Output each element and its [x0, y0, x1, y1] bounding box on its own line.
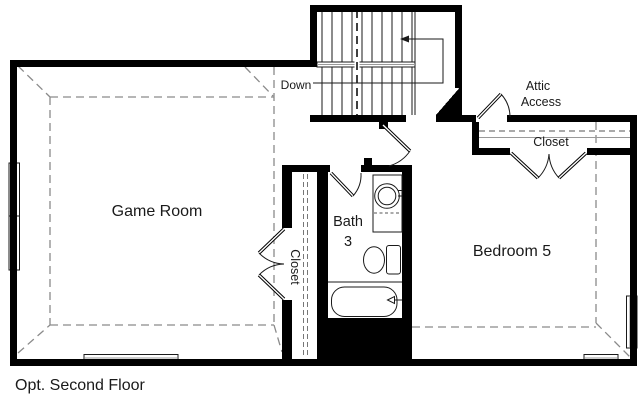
- bedroom-closet-bottom-wall-right: [587, 148, 637, 155]
- bedroom-top-wall-right: [507, 115, 637, 122]
- bedroom-closet-bottom-wall-left: [472, 148, 510, 155]
- closet-left-wall-upper: [282, 172, 292, 228]
- bedroom-label: Bedroom 5: [473, 243, 551, 260]
- bath-plumbing-wall-mass: [317, 318, 412, 366]
- stair-top-wall: [310, 5, 462, 12]
- bath-right-wall: [402, 172, 412, 318]
- down-label: Down: [281, 78, 312, 92]
- attic-access-label-line2: Access: [521, 95, 561, 109]
- stair-right-wall: [455, 12, 462, 88]
- plan-caption: Opt. Second Floor: [15, 377, 146, 394]
- floor-plan: Game Room Bath 3 Bedroom 5 Closet Closet…: [0, 0, 640, 407]
- closet-label-game-room: Closet: [288, 249, 302, 285]
- game-room-top-wall: [13, 60, 317, 67]
- bath-top-wall-left: [282, 165, 330, 172]
- floor-plan-drawing: Game Room Bath 3 Bedroom 5 Closet Closet…: [0, 0, 640, 407]
- bath-left-wall: [317, 172, 328, 318]
- bath-top-wall-right: [361, 165, 412, 172]
- bath-label-line2: 3: [344, 234, 352, 250]
- game-room-label: Game Room: [112, 203, 203, 220]
- bedroom-top-wall-left: [436, 115, 476, 122]
- bath-label-line1: Bath: [333, 214, 363, 230]
- closet-label-bedroom: Closet: [533, 135, 569, 149]
- closet-left-wall-lower: [282, 300, 292, 359]
- attic-access-label-line1: Attic: [526, 79, 550, 93]
- stair-left-wall: [310, 5, 317, 67]
- stair-bottom-wall: [310, 115, 406, 122]
- sink-vanity: [373, 175, 402, 232]
- left-exterior-wall: [10, 60, 17, 366]
- bath-door-jamb: [364, 158, 372, 165]
